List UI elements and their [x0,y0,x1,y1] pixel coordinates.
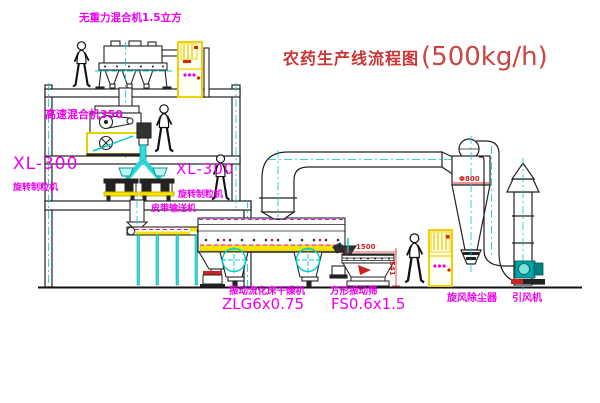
fan-label: 引风机 [512,294,542,304]
cabinet-indicator-dots [183,73,195,76]
person-figure [73,42,90,87]
control-cabinet-upper [178,42,202,97]
cyclone-diameter-dimension: Φ800 [459,176,480,183]
indicator-light [446,235,450,239]
screen-height-dimension: 541 [388,261,395,276]
cyclone-label: 旋风除尘器 [447,294,497,304]
exhaust-duct [259,152,457,219]
person-figure [405,234,424,283]
granulator-left-name: 旋转制粒机 [13,184,58,193]
person-figure [155,105,173,152]
control-cabinet-lower [429,230,452,286]
granulator-right-name: 旋转制粒机 [178,191,223,200]
belt-conveyor [127,227,205,285]
dryer-model-label: ZLG6x0.75 [222,297,304,312]
belt-conveyor-label: 皮带输送机 [151,205,196,214]
conveyor-legs [137,235,198,285]
process-flow-diagram: 无重力混合机1.5立方 农药生产线流程图 (500kg/h) 高速混合机350 … [0,0,600,403]
cabinet-indicator-dots [433,264,445,267]
title-text: 农药生产线流程图 [283,51,419,67]
title-capacity: (500kg/h) [421,44,548,70]
feed-pipe [204,48,209,97]
screen-length-dimension: 1500 [356,244,375,251]
diagram-title: 农药生产线流程图 (500kg/h) [283,44,548,70]
granulator-right-model: XL-300 [176,162,234,177]
top-mixer-label: 无重力混合机1.5立方 [79,13,182,24]
granulator-left-model: XL-300 [13,156,78,173]
induced-draft-fan [511,261,545,284]
high-speed-mixer-label: 高速混合机350 [45,109,123,120]
indicator-light [183,60,191,63]
rotary-granulator-right [140,168,174,201]
indicator-light [194,46,198,49]
discharge-stand [200,271,225,287]
screen-model-label: FS0.6x1.5 [331,297,405,312]
